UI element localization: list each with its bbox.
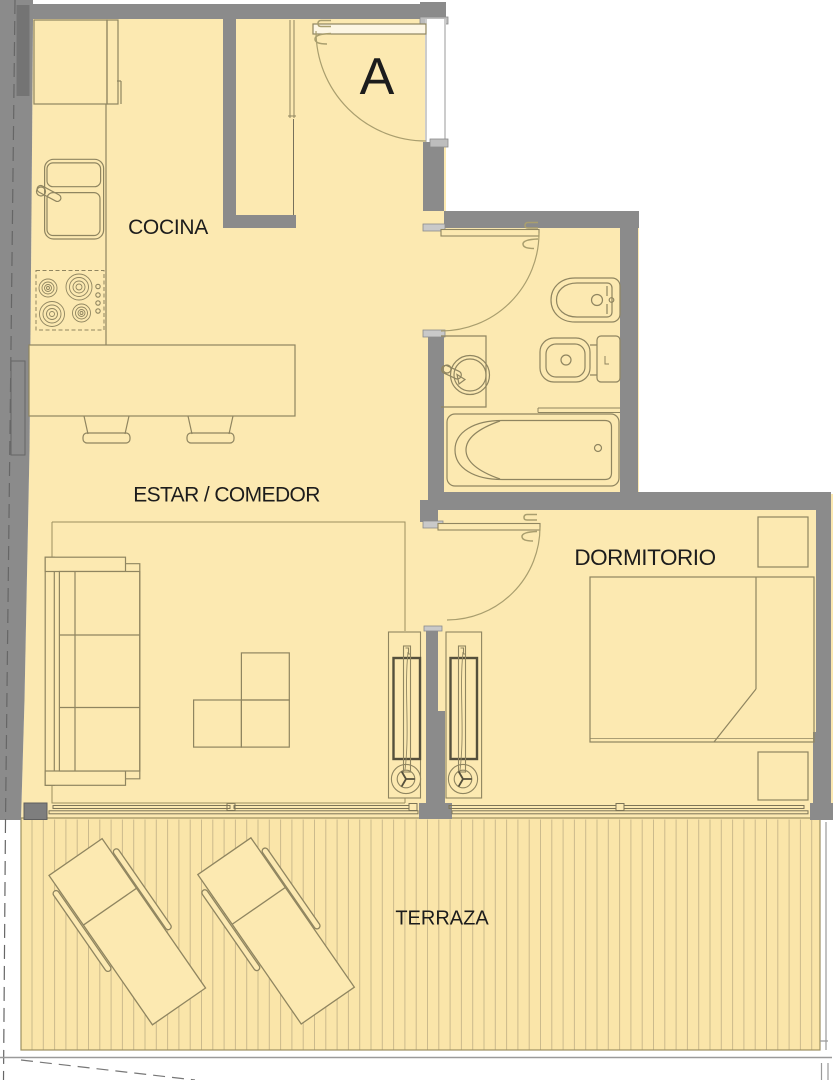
svg-text:ESTAR / COMEDOR: ESTAR / COMEDOR bbox=[133, 484, 320, 507]
svg-text:TERRAZA: TERRAZA bbox=[395, 908, 489, 930]
svg-text:A: A bbox=[360, 48, 395, 106]
svg-text:COCINA: COCINA bbox=[128, 216, 208, 239]
svg-text:DORMITORIO: DORMITORIO bbox=[574, 545, 715, 570]
